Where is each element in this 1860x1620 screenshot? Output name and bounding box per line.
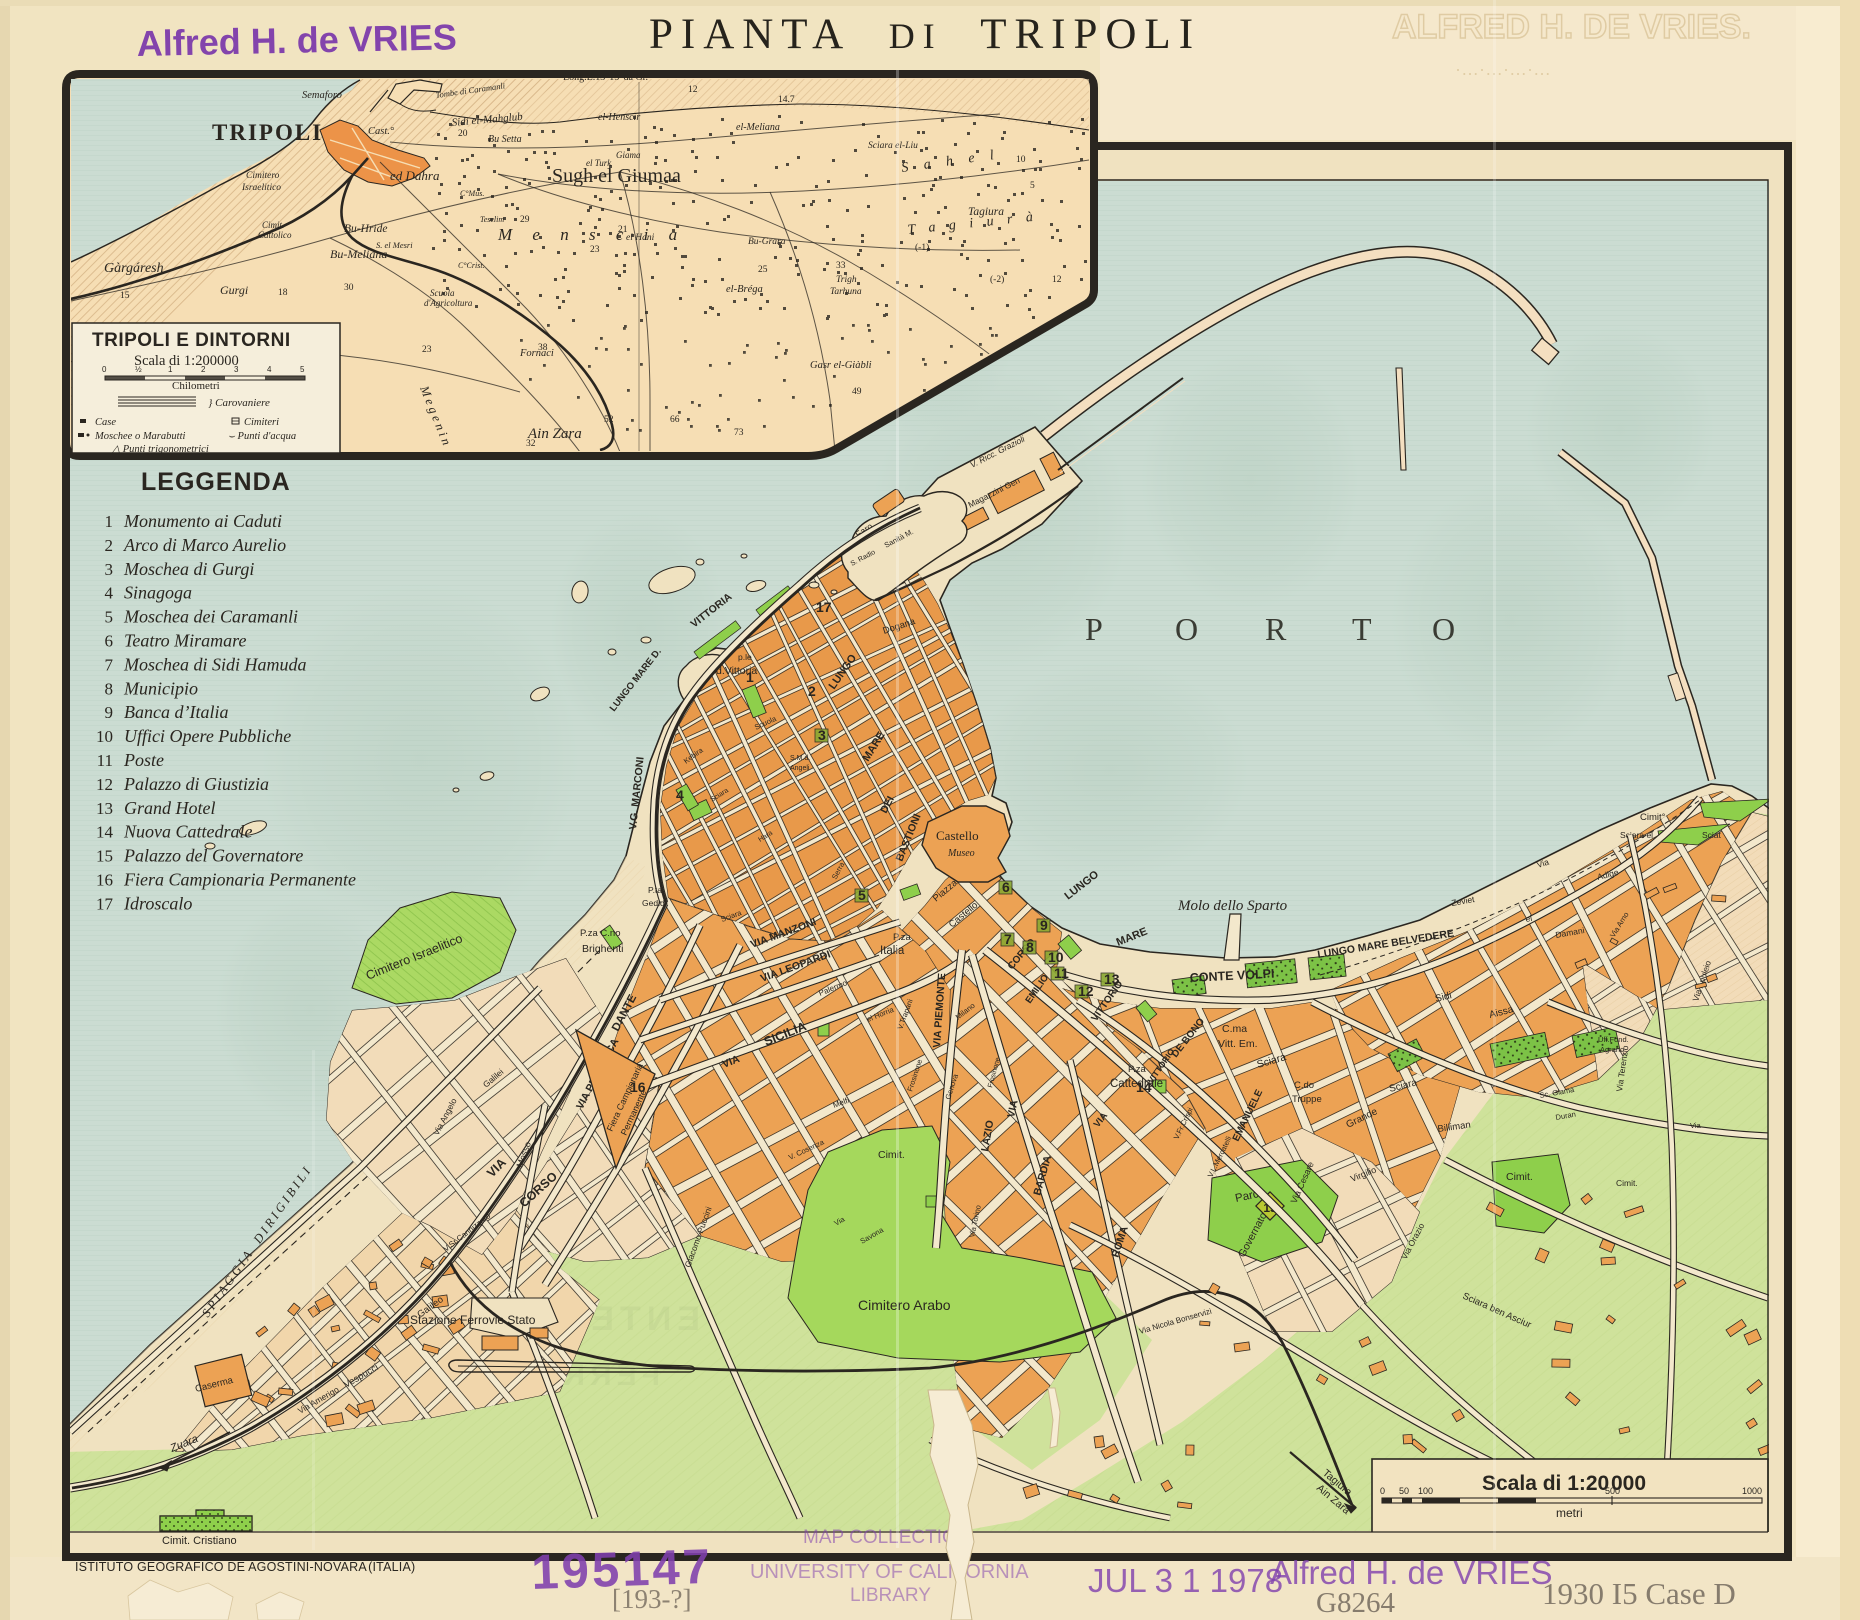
svg-text:S.M.d.: S.M.d. (790, 755, 810, 762)
svg-text:Cimiteri: Cimiteri (244, 417, 279, 428)
svg-text:23: 23 (422, 345, 432, 355)
svg-text:17: 17 (96, 894, 114, 913)
svg-text:Scala di 1:20 000: Scala di 1:20 000 (1482, 1472, 1646, 1495)
svg-text:Palazzo di Giustizia: Palazzo di Giustizia (123, 774, 269, 794)
svg-text:1: 1 (105, 512, 114, 531)
svg-text:Banca d’Italia: Banca d’Italia (124, 702, 228, 722)
svg-text:14: 14 (1136, 1079, 1152, 1095)
svg-text:Tagiura: Tagiura (968, 206, 1004, 218)
svg-text:Municipio: Municipio (123, 678, 198, 698)
svg-text:7: 7 (105, 655, 114, 674)
svg-text:Gurgi: Gurgi (220, 283, 248, 297)
svg-text:14.7: 14.7 (778, 95, 795, 105)
svg-text:4: 4 (105, 584, 114, 603)
svg-text:13: 13 (1104, 971, 1120, 987)
svg-text:T: T (1352, 611, 1372, 647)
svg-text:0: 0 (102, 365, 107, 374)
svg-text:50: 50 (1399, 1486, 1409, 1496)
svg-text:20: 20 (458, 129, 468, 139)
svg-text:Alfred H. de VRIES: Alfred H. de VRIES (1270, 1554, 1552, 1591)
svg-text:25: 25 (758, 265, 768, 275)
svg-text:C.do: C.do (1294, 1080, 1314, 1091)
svg-text:Cimit°: Cimit° (1640, 812, 1666, 823)
svg-text:3: 3 (234, 365, 239, 374)
svg-text:Uff.Fond.: Uff.Fond. (1598, 1035, 1629, 1044)
svg-text:C.ma: C.ma (1222, 1023, 1247, 1035)
svg-text:O: O (1432, 611, 1455, 647)
svg-text:Giama: Giama (616, 150, 641, 160)
svg-text:Truppe: Truppe (1292, 1094, 1322, 1105)
svg-text:Israelitico: Israelitico (241, 183, 281, 193)
svg-text:12: 12 (1052, 275, 1062, 285)
svg-text:⌣ Punti d'acqua: ⌣ Punti d'acqua (228, 431, 296, 442)
svg-text:21: 21 (618, 225, 628, 235)
svg-text:Nuova Cattedrale: Nuova Cattedrale (123, 822, 253, 842)
svg-text:Vitt. Em.: Vitt. Em. (1218, 1038, 1257, 1050)
svg-text:9: 9 (105, 703, 114, 722)
svg-text:12: 12 (688, 85, 698, 95)
svg-text:11: 11 (97, 751, 113, 770)
svg-text:17: 17 (816, 599, 832, 615)
svg-text:29: 29 (520, 215, 530, 225)
svg-text:33: 33 (836, 261, 846, 271)
svg-text:15: 15 (96, 847, 113, 866)
svg-text:10: 10 (1048, 949, 1064, 965)
svg-text:Alfred H. de VRIES: Alfred H. de VRIES (136, 16, 457, 64)
svg-text:Bu Setta: Bu Setta (488, 134, 522, 145)
svg-text:Trigh: Trigh (836, 275, 857, 285)
svg-text:Italia: Italia (880, 945, 905, 957)
svg-text:Angeli: Angeli (790, 765, 810, 772)
svg-text:Cimit.: Cimit. (878, 1149, 905, 1161)
svg-text:ISTITUTO GEOGRAFICO DE AGOSTIN: ISTITUTO GEOGRAFICO DE AGOSTINI-NOVARA (… (75, 1560, 415, 1574)
svg-text:P: P (1085, 611, 1103, 647)
svg-text:66: 66 (670, 415, 680, 425)
svg-text:8: 8 (1026, 939, 1034, 955)
svg-text:Teselim: Teselim (480, 215, 504, 224)
svg-text:Gedid: Gedid (642, 898, 665, 908)
svg-text:UNIVERSITY OF CALIFORNIA: UNIVERSITY OF CALIFORNIA (750, 1561, 1029, 1583)
svg-text:32: 32 (526, 439, 536, 449)
svg-text:ALFRED H. DE VRIES.: ALFRED H. DE VRIES. (1392, 8, 1751, 46)
svg-text:(-1): (-1) (915, 242, 929, 253)
svg-text:PIANTA DI TRIPOLI: PIANTA DI TRIPOLI (649, 11, 1201, 58)
svg-text:5: 5 (1030, 181, 1035, 191)
svg-text:Cast.°: Cast.° (368, 126, 395, 137)
svg-text:Cattolico: Cattolico (258, 230, 292, 240)
svg-text:R: R (1265, 611, 1287, 647)
svg-text:1: 1 (746, 669, 754, 685)
svg-text:10: 10 (1016, 155, 1026, 165)
svg-text:TRIPOLI: TRIPOLI (212, 120, 323, 145)
svg-text:Scuola: Scuola (430, 288, 455, 298)
svg-text:3: 3 (818, 727, 826, 743)
svg-text:el-Bréga: el-Bréga (726, 284, 763, 295)
svg-text:Cimitero Arabo: Cimitero Arabo (858, 1297, 951, 1313)
svg-text:4: 4 (676, 787, 684, 803)
svg-text:el-Meliana: el-Meliana (736, 122, 780, 133)
svg-text:P.za: P.za (893, 932, 912, 943)
svg-text:Cimit.: Cimit. (1506, 1171, 1533, 1183)
svg-text:52: 52 (604, 415, 614, 425)
svg-text:38: 38 (538, 343, 548, 353)
svg-text:Brighenti: Brighenti (582, 943, 623, 955)
svg-text:2: 2 (201, 365, 206, 374)
svg-text:15: 15 (120, 291, 130, 301)
svg-text:Semaforo: Semaforo (302, 90, 342, 101)
svg-text:Sciara el: Sciara el (1620, 830, 1653, 840)
svg-text:Gàrgáresh: Gàrgáresh (104, 261, 164, 276)
svg-text:C°Crist.: C°Crist. (458, 261, 485, 270)
svg-text:Fornaci: Fornaci (519, 348, 554, 359)
svg-text:S. el Mesri: S. el Mesri (376, 240, 413, 250)
svg-text:el-Henscir: el-Henscir (598, 112, 640, 123)
svg-text:Bu-Grara: Bu-Grara (748, 237, 786, 247)
svg-text:6: 6 (1002, 879, 1010, 895)
svg-text:} Carovaniere: } Carovaniere (208, 397, 270, 409)
svg-text:Sugh el Giumaa: Sugh el Giumaa (552, 165, 681, 187)
svg-text:Cimit.: Cimit. (262, 220, 284, 230)
svg-text:16: 16 (96, 871, 113, 890)
svg-text:5: 5 (300, 365, 305, 374)
svg-text:195147: 195147 (530, 1540, 713, 1600)
svg-text:Teatro Miramare: Teatro Miramare (124, 631, 247, 651)
svg-text:14: 14 (96, 823, 114, 842)
svg-text:Agrario: Agrario (1600, 1045, 1624, 1054)
svg-text:5: 5 (858, 887, 866, 903)
svg-text:d'Agricoltura: d'Agricoltura (424, 298, 473, 308)
svg-text:·…·…·…·…: ·…·…·…·… (1455, 59, 1551, 79)
svg-text:G8264: G8264 (1316, 1587, 1395, 1619)
svg-text:5: 5 (105, 608, 114, 627)
svg-text:p.le: p.le (738, 652, 752, 662)
svg-text:ed Dahra: ed Dahra (390, 168, 440, 183)
svg-text:100: 100 (1418, 1486, 1433, 1496)
svg-text:Moschea dei Caramanli: Moschea dei Caramanli (123, 607, 298, 627)
svg-text:Cimitero: Cimitero (246, 171, 280, 181)
svg-text:49: 49 (852, 387, 862, 397)
svg-text:metri: metri (1556, 1506, 1583, 1520)
svg-text:4: 4 (267, 365, 272, 374)
svg-text:12: 12 (96, 775, 113, 794)
svg-text:P.za C.no: P.za C.no (580, 928, 621, 939)
svg-text:2: 2 (808, 683, 816, 699)
svg-text:Moschea di Gurgi: Moschea di Gurgi (123, 559, 254, 579)
svg-text:9: 9 (1040, 917, 1048, 933)
svg-text:(-2): (-2) (990, 274, 1004, 285)
svg-text:Sciara el-Liu: Sciara el-Liu (868, 141, 918, 151)
svg-text:1930 I5 Case D: 1930 I5 Case D (1542, 1576, 1736, 1611)
svg-text:Cimit.: Cimit. (1616, 1178, 1638, 1188)
svg-text:6: 6 (105, 632, 114, 651)
svg-text:Bu-Hride: Bu-Hride (344, 223, 387, 235)
svg-text:Idroscalo: Idroscalo (123, 893, 192, 913)
svg-text:16: 16 (630, 1079, 646, 1095)
svg-text:10: 10 (96, 727, 113, 746)
svg-text:P.ta: P.ta (648, 885, 662, 895)
svg-text:0: 0 (1380, 1486, 1385, 1496)
svg-text:Gasr el-Giàbli: Gasr el-Giàbli (810, 360, 872, 371)
svg-text:Chilometri: Chilometri (172, 380, 220, 392)
svg-text:MAP COLLECTION: MAP COLLECTION (803, 1527, 971, 1548)
svg-text:LIBRARY: LIBRARY (850, 1585, 931, 1606)
svg-text:O: O (1175, 611, 1198, 647)
svg-text:Poste: Poste (123, 750, 164, 770)
svg-text:½: ½ (135, 365, 142, 374)
svg-text:Castello: Castello (936, 828, 979, 843)
svg-text:Scala di 1:200000: Scala di 1:200000 (134, 353, 239, 369)
svg-text:Case: Case (95, 417, 116, 428)
svg-text:Via: Via (1690, 1121, 1702, 1130)
svg-text:Arco di Marco Aurelio: Arco di Marco Aurelio (123, 535, 286, 555)
svg-text:M e n s c i a: M e n s c i a (497, 225, 685, 244)
svg-text:C°Mus.: C°Mus. (460, 189, 484, 198)
svg-text:Sciat: Sciat (1702, 830, 1722, 840)
svg-text:Tarhuna: Tarhuna (830, 287, 862, 297)
svg-text:Sinagoga: Sinagoga (124, 583, 192, 603)
svg-text:7: 7 (1004, 931, 1012, 947)
svg-text:Monumento ai Caduti: Monumento ai Caduti (123, 511, 282, 531)
svg-text:12: 12 (1078, 983, 1094, 999)
svg-text:Fiera Campionaria Permanente: Fiera Campionaria Permanente (123, 870, 356, 890)
svg-text:Long.E.13°15' da Gr.: Long.E.13°15' da Gr. (563, 72, 648, 83)
svg-text:TRIPOLI E DINTORNI: TRIPOLI E DINTORNI (92, 330, 291, 351)
svg-text:Cimit. Cristiano: Cimit. Cristiano (162, 1535, 237, 1547)
svg-text:11: 11 (1054, 965, 1069, 981)
svg-text:el Hani: el Hani (626, 233, 655, 243)
svg-text:1000: 1000 (1742, 1486, 1762, 1496)
svg-text:el Turk: el Turk (586, 158, 612, 168)
svg-text:Museo: Museo (947, 848, 975, 859)
svg-text:Moschee o Marabutti: Moschee o Marabutti (94, 431, 185, 442)
svg-text:Moschea di Sidi Hamuda: Moschea di Sidi Hamuda (123, 654, 306, 674)
svg-text:Palazzo del Governatore: Palazzo del Governatore (123, 846, 303, 866)
svg-text:13: 13 (96, 799, 113, 818)
svg-text:30: 30 (344, 283, 354, 293)
svg-text:18: 18 (278, 288, 288, 298)
svg-text:3: 3 (105, 560, 114, 579)
svg-text:P.za: P.za (1128, 1064, 1147, 1075)
svg-text:500: 500 (1605, 1486, 1620, 1496)
svg-text:Molo dello Sparto: Molo dello Sparto (1177, 898, 1288, 914)
svg-text:LEGGENDA: LEGGENDA (141, 468, 291, 496)
svg-text:1: 1 (168, 365, 173, 374)
svg-text:73: 73 (734, 428, 744, 438)
svg-text:23: 23 (590, 245, 600, 255)
svg-text:Grand Hotel: Grand Hotel (124, 798, 216, 818)
svg-text:Uffici Opere Pubbliche: Uffici Opere Pubbliche (124, 726, 291, 746)
svg-text:JUL 3 1 1978: JUL 3 1 1978 (1088, 1562, 1283, 1599)
svg-text:△ Punti trigonometrici: △ Punti trigonometrici (111, 444, 209, 455)
svg-text:2: 2 (105, 536, 114, 555)
svg-text:8: 8 (105, 679, 114, 698)
